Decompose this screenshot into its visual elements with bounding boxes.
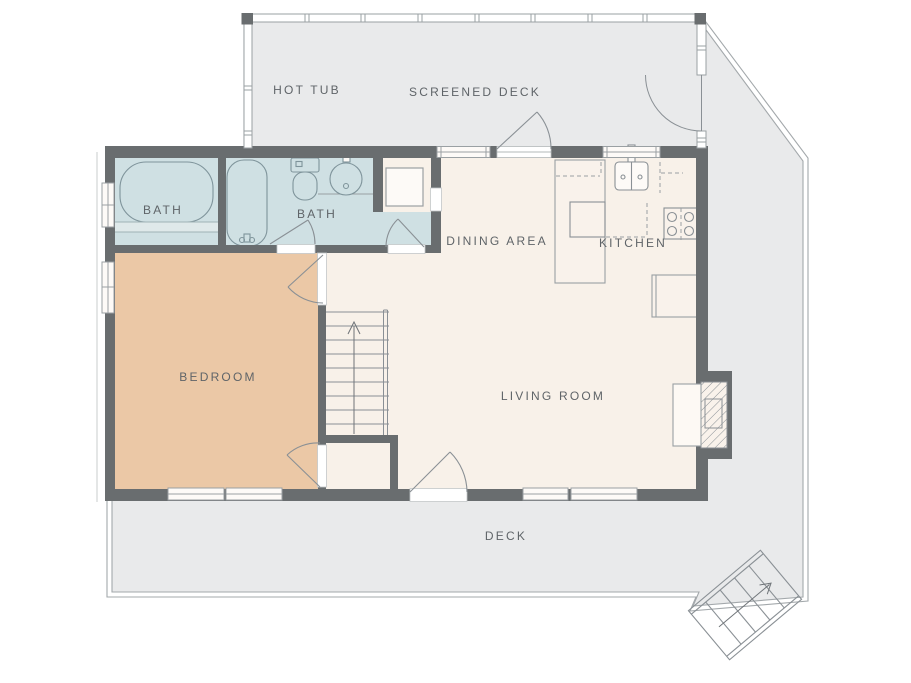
room-label-hot-tub: HOT TUB bbox=[273, 83, 341, 97]
opening-dining-nook bbox=[431, 188, 442, 211]
screen-post-left bbox=[242, 13, 254, 25]
room-label-screened-deck: SCREENED DECK bbox=[409, 85, 541, 99]
tub-step bbox=[115, 222, 218, 232]
opening-living-door bbox=[410, 489, 467, 502]
window-bedroom-left bbox=[102, 262, 114, 313]
toilet bbox=[291, 158, 319, 200]
hearth bbox=[673, 384, 701, 446]
screen-post-right bbox=[695, 13, 707, 25]
floor-plan-svg bbox=[0, 0, 911, 683]
opening-bath2-door bbox=[277, 245, 315, 254]
window-bath-left bbox=[102, 183, 114, 227]
room-label-bath-2: BATH bbox=[297, 207, 337, 221]
fireplace bbox=[673, 382, 727, 448]
opening-closet-door bbox=[318, 445, 327, 487]
wall-understair bbox=[318, 435, 398, 443]
window-kitchen-top bbox=[603, 147, 660, 158]
window-dining-top bbox=[437, 147, 490, 158]
room-label-bath-1: BATH bbox=[143, 203, 183, 217]
room-label-dining-area: DINING AREA bbox=[446, 234, 548, 248]
room-label-bedroom: BEDROOM bbox=[179, 370, 256, 384]
window-living-bottom bbox=[523, 488, 637, 500]
wall-bath-divider bbox=[218, 152, 226, 247]
room-label-kitchen: KITCHEN bbox=[599, 236, 667, 250]
screen-rail-top bbox=[244, 14, 700, 22]
room-label-deck: DECK bbox=[485, 529, 527, 543]
wall-closet-east bbox=[390, 435, 398, 493]
room-label-living-room: LIVING ROOM bbox=[501, 389, 605, 403]
floor-plan: HOT TUB SCREENED DECK BATH BATH DINING A… bbox=[0, 0, 911, 683]
opening-vestibule-door bbox=[388, 245, 425, 254]
kitchen-counter bbox=[652, 275, 698, 317]
opening-bedroom-door bbox=[318, 253, 327, 305]
shower bbox=[386, 168, 423, 206]
bathtub bbox=[227, 160, 267, 246]
kitchen-island bbox=[555, 160, 605, 283]
wall-closet-west bbox=[373, 155, 383, 212]
screen-rail-left bbox=[244, 22, 252, 148]
